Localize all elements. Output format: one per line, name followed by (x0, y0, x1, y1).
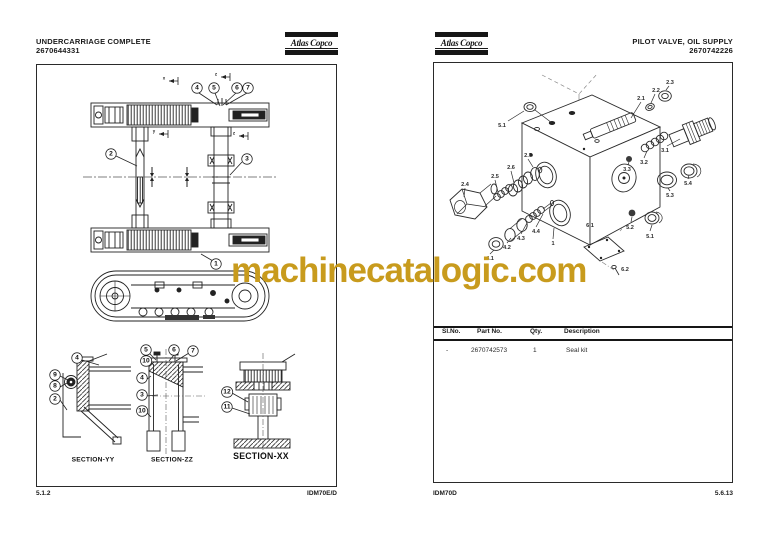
callout-1: 1 (210, 258, 221, 269)
logo-bar-top-icon (435, 32, 488, 37)
left-footer-doc-code: IDM70E/D (307, 490, 337, 497)
part-label-5.2: 5.2 (626, 224, 634, 230)
logo-wordmark: Atlas Copco (285, 38, 338, 49)
part-label-3.2: 3.2 (640, 159, 648, 165)
callout-7: 7 (187, 345, 198, 356)
callout-4: 4 (71, 352, 82, 363)
section-zz-drawing (141, 349, 205, 455)
plan-view (83, 73, 277, 261)
section-label-section-yy: SECTION-YY (72, 456, 115, 464)
left-title-text: UNDERCARRIAGE COMPLETE (36, 37, 151, 46)
left-page-footer: 5.1.2 IDM70E/D (36, 490, 337, 497)
right-title-text: PILOT VALVE, OIL SUPPLY (632, 37, 733, 46)
section-yy-drawing (60, 354, 131, 444)
col-header-qty: Qty. (530, 328, 542, 335)
callout-10: 10 (136, 405, 148, 416)
catalog-spread: UNDERCARRIAGE COMPLETE 2670644331 Atlas … (0, 0, 768, 543)
callout-12: 12 (221, 386, 233, 397)
callout-3: 3 (136, 389, 147, 400)
cut-marker-z: z (233, 131, 235, 136)
callout-4: 4 (191, 82, 202, 93)
callout-2: 2 (49, 393, 60, 404)
col-header-part-no: Part No. (477, 328, 502, 335)
callout-6: 6 (168, 344, 179, 355)
callout-5: 5 (208, 82, 219, 93)
callout-3: 3 (241, 153, 252, 164)
part-label-5.4: 5.4 (684, 180, 692, 186)
part-label-2.3: 2.3 (666, 79, 674, 85)
part-label-5.3: 5.3 (666, 192, 674, 198)
callout-10: 10 (140, 355, 152, 366)
part-label-6.2: 6.2 (621, 266, 629, 272)
watermark: machinecatalogic.com (231, 251, 586, 291)
right-page-title: PILOT VALVE, OIL SUPPLY 2670742226 (632, 37, 733, 55)
part-label-3.3: 3.3 (623, 166, 631, 172)
part-label-2.2: 2.2 (652, 87, 660, 93)
cut-marker-z: z (215, 72, 217, 77)
part-label-2.7: 2.7 (524, 152, 532, 158)
callout-11: 11 (221, 401, 232, 412)
callout-4: 4 (136, 372, 147, 383)
logo-wordmark: Atlas Copco (435, 38, 488, 49)
callout-2: 2 (105, 148, 116, 159)
row-part-no: 2670742573 (471, 347, 507, 354)
right-part-number: 2670742226 (632, 46, 733, 55)
row-qty: 1 (533, 347, 537, 354)
cut-marker-y: y (153, 129, 155, 134)
left-page-title: UNDERCARRIAGE COMPLETE 2670644331 (36, 37, 151, 55)
left-footer-page-number: 5.1.2 (36, 490, 50, 497)
part-label-4.3: 4.3 (517, 235, 525, 241)
callout-7: 7 (242, 82, 253, 93)
cut-marker-x: x (163, 76, 165, 81)
atlas-copco-logo-right: Atlas Copco (435, 32, 488, 55)
logo-bar-top-icon (285, 32, 338, 37)
row-description: Seal kit (566, 347, 587, 354)
callout-6: 6 (231, 82, 242, 93)
right-page-footer: IDM70D 5.6.13 (433, 490, 733, 497)
row-slno: - (446, 347, 448, 354)
part-label-5.1: 5.1 (646, 233, 654, 239)
part-label-2.1: 2.1 (637, 95, 645, 101)
part-label-2.4: 2.4 (461, 181, 469, 187)
section-label-section-xx: SECTION-XX (233, 452, 289, 461)
atlas-copco-logo: Atlas Copco (285, 32, 338, 55)
part-label-1: 1 (551, 240, 554, 246)
col-header-description: Description (564, 328, 600, 335)
table-header-rule (434, 339, 732, 341)
left-part-number: 2670644331 (36, 46, 151, 55)
part-label-3.1: 3.1 (661, 147, 669, 153)
callout-9: 9 (49, 369, 60, 380)
part-label-2.6: 2.6 (507, 164, 515, 170)
callout-8: 8 (49, 380, 60, 391)
part-label-2.5: 2.5 (491, 173, 499, 179)
part-label-6.1: 6.1 (586, 222, 594, 228)
logo-bar-bottom-icon (435, 50, 488, 55)
part-label-4.4: 4.4 (532, 228, 540, 234)
section-xx-drawing (232, 353, 295, 455)
part-label-4.2: 4.2 (503, 244, 511, 250)
section-label-section-zz: SECTION-ZZ (151, 456, 193, 464)
col-header-slno: Sl.No. (442, 328, 460, 335)
part-label-5.1: 5.1 (498, 122, 506, 128)
callout-5: 5 (140, 344, 151, 355)
right-footer-doc-code: IDM70D (433, 490, 457, 497)
logo-bar-bottom-icon (285, 50, 338, 55)
right-footer-page-number: 5.6.13 (715, 490, 733, 497)
